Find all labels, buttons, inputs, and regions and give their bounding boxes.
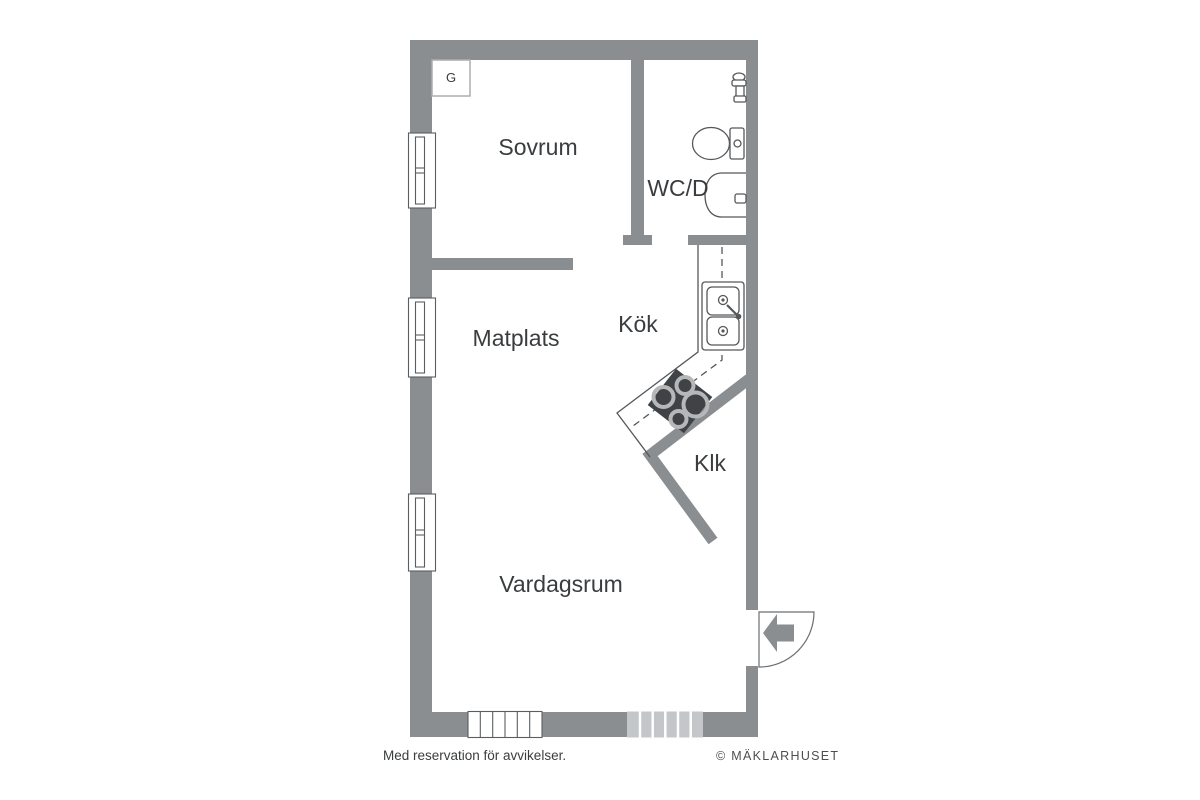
toilet-icon xyxy=(693,128,745,160)
copyright-text: © MÄKLARHUSET xyxy=(716,749,839,763)
room-label-kok: Kök xyxy=(618,311,658,337)
toilet-bowl xyxy=(693,128,730,160)
wall-sovrum-hall xyxy=(631,60,644,235)
wall-matplats xyxy=(425,258,573,270)
wall-top xyxy=(410,40,758,60)
wall-sovrum-hall-endcap xyxy=(623,235,652,245)
shower-mixer-icon xyxy=(732,73,746,102)
balcony-window-bottom xyxy=(627,712,703,738)
mixer-plate xyxy=(732,80,746,86)
closet-label: G xyxy=(446,70,456,85)
sink-faucet-head xyxy=(736,314,742,320)
floorplan-page: G Sovrum WC xyxy=(0,0,1200,800)
washbasin-icon xyxy=(705,173,746,217)
toilet-button xyxy=(734,140,741,147)
wall-wc-bottom xyxy=(688,235,746,245)
wall-bottom-seg3 xyxy=(703,712,758,737)
entrance-door xyxy=(759,612,814,667)
room-label-vardagsrum: Vardagsrum xyxy=(499,571,623,597)
stove-icon xyxy=(648,369,713,434)
floor-plan: G Sovrum WC xyxy=(0,0,1200,800)
sink-drain-top-dot xyxy=(721,298,724,301)
room-label-wcd: WC/D xyxy=(647,175,708,201)
wall-left-seg3 xyxy=(410,377,432,494)
window-left-3 xyxy=(409,494,436,571)
room-label-matplats: Matplats xyxy=(473,325,560,351)
mixer-base xyxy=(734,96,746,102)
closet-g: G xyxy=(432,60,470,96)
wall-right-seg1 xyxy=(746,40,758,610)
disclaimer-text: Med reservation för avvikelser. xyxy=(383,748,566,763)
window-sash xyxy=(416,302,425,373)
room-label-sovrum: Sovrum xyxy=(498,134,577,160)
wall-bottom-seg2 xyxy=(542,712,627,737)
window-left-2 xyxy=(409,298,436,377)
sink-drain-bottom-dot xyxy=(721,329,724,332)
wall-left-seg1 xyxy=(410,40,432,133)
kitchen-counter xyxy=(617,245,744,457)
kitchen-sink-icon xyxy=(702,282,744,350)
window-sash xyxy=(416,137,425,204)
wall-bottom-seg1 xyxy=(410,712,468,737)
window-sash xyxy=(416,498,425,567)
room-label-klk: Klk xyxy=(694,450,726,476)
basin-tap xyxy=(735,194,746,203)
window-bottom xyxy=(468,712,542,738)
window-left-1 xyxy=(409,133,436,208)
wall-left-seg2 xyxy=(410,208,432,298)
